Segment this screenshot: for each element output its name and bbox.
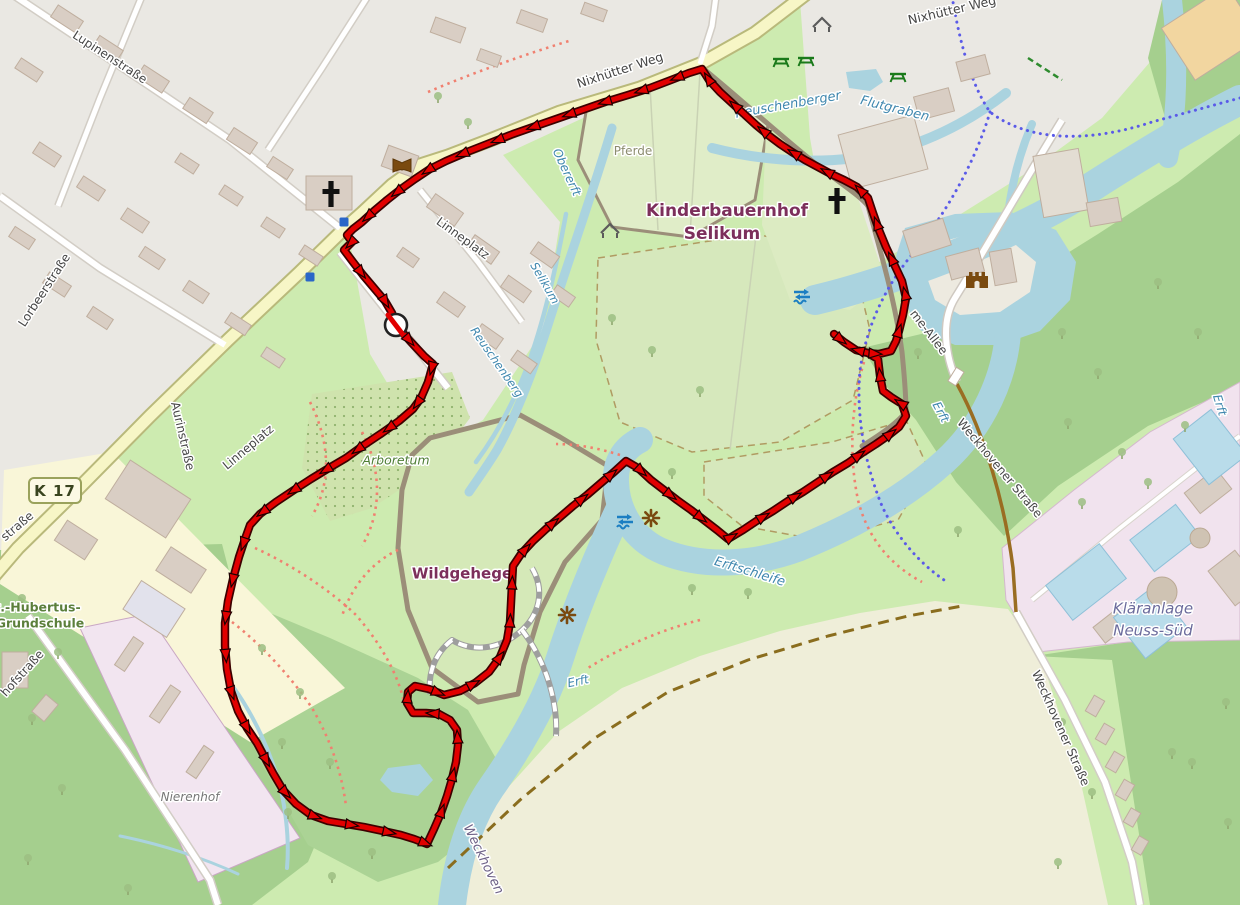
parking-icon (306, 273, 315, 282)
tree-icon (668, 468, 676, 476)
tree-icon (1222, 698, 1230, 706)
tree-icon (258, 644, 266, 652)
tree-icon (1144, 478, 1152, 486)
tree-icon (1224, 818, 1232, 826)
map-canvas[interactable]: LupinenstraßeLorbeerstraßeLinneplatzLinn… (0, 0, 1240, 905)
map-label: St.-Hubertus- (0, 599, 81, 614)
tree-icon (434, 92, 442, 100)
tree-icon (28, 714, 36, 722)
tree-icon (1194, 328, 1202, 336)
tree-icon (608, 314, 616, 322)
map-label: Kinderbauernhof (646, 201, 809, 221)
map-label: Selikum (684, 224, 761, 244)
tree-icon (1078, 498, 1086, 506)
tree-icon (328, 872, 336, 880)
tree-icon (954, 526, 962, 534)
tree-icon (368, 848, 376, 856)
map-label: Nierenhof (161, 790, 222, 804)
tree-icon (1058, 328, 1066, 336)
tree-icon (124, 884, 132, 892)
tree-icon (744, 588, 752, 596)
tree-icon (1064, 418, 1072, 426)
tree-icon (1094, 368, 1102, 376)
tree-icon (24, 854, 32, 862)
tree-icon (1088, 788, 1096, 796)
map-label: Grundschule (0, 615, 84, 630)
tree-icon (1118, 448, 1126, 456)
tree-icon (648, 346, 656, 354)
map-label: Pferde (614, 144, 653, 158)
tree-icon (296, 688, 304, 696)
tree-icon (54, 648, 62, 656)
treatment-tank (1190, 528, 1210, 548)
tree-icon (696, 386, 704, 394)
parking-icon (340, 218, 349, 227)
map-svg: LupinenstraßeLorbeerstraßeLinneplatzLinn… (0, 0, 1240, 905)
tree-icon (1168, 748, 1176, 756)
building (1086, 197, 1122, 226)
tree-icon (1054, 858, 1062, 866)
tree-icon (688, 584, 696, 592)
tree-icon (1188, 758, 1196, 766)
tree-icon (58, 784, 66, 792)
tree-icon (284, 808, 292, 816)
map-label: Kläranlage (1113, 599, 1193, 617)
map-label: Wildgehege (412, 564, 512, 582)
tree-icon (326, 758, 334, 766)
tree-icon (1154, 278, 1162, 286)
map-label: Neuss-Süd (1113, 621, 1193, 639)
map-label: Arboretum (361, 452, 429, 467)
tree-icon (1181, 421, 1189, 429)
tree-icon (464, 118, 472, 126)
tree-icon (278, 738, 286, 746)
road-ref-badge: K 17 (28, 477, 82, 504)
tree-icon (914, 348, 922, 356)
